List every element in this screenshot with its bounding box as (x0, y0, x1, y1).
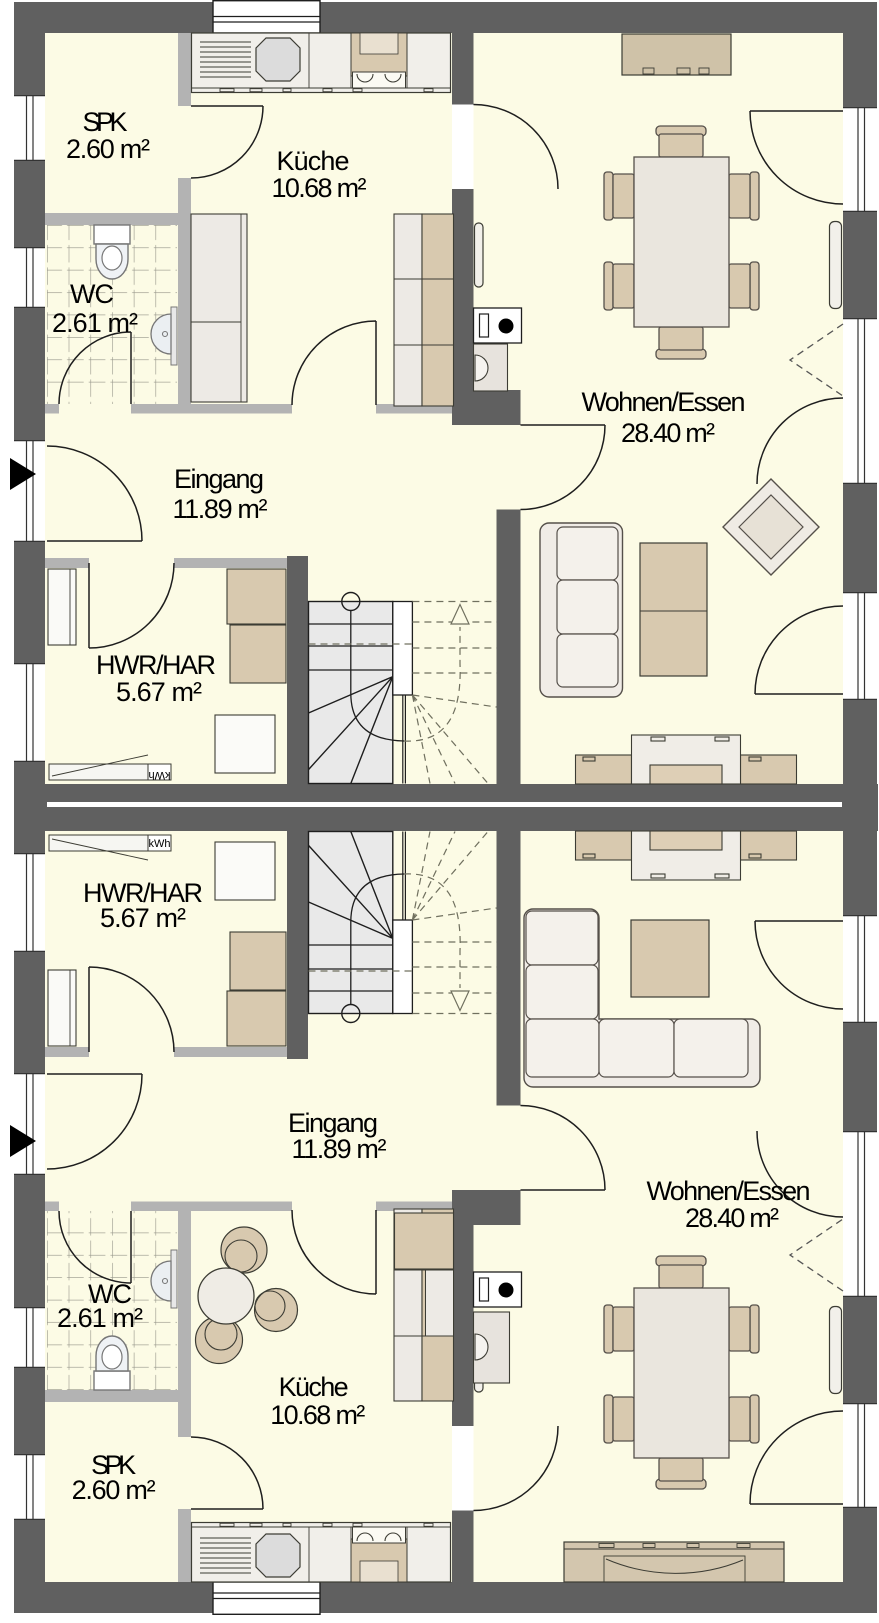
svg-text:5.67 m²: 5.67 m² (116, 677, 202, 707)
svg-text:2.61 m²: 2.61 m² (52, 308, 138, 338)
svg-text:10.68 m²: 10.68 m² (272, 173, 367, 203)
svg-text:5.67 m²: 5.67 m² (100, 903, 186, 933)
svg-text:Küche: Küche (277, 146, 350, 176)
svg-text:10.68 m²: 10.68 m² (270, 1400, 365, 1430)
svg-text:Eingang: Eingang (174, 464, 264, 494)
svg-text:11.89 m²: 11.89 m² (292, 1134, 387, 1164)
svg-text:kWh: kWh (149, 838, 171, 850)
svg-text:HWR/HAR: HWR/HAR (96, 650, 216, 680)
svg-text:2.60 m²: 2.60 m² (66, 134, 150, 164)
svg-text:kWh: kWh (149, 769, 171, 781)
svg-text:Wohnen/Essen: Wohnen/Essen (582, 387, 746, 417)
svg-text:WC: WC (70, 279, 114, 309)
svg-text:28.40 m²: 28.40 m² (621, 418, 715, 448)
svg-text:28.40 m²: 28.40 m² (685, 1203, 779, 1233)
svg-text:2.60 m²: 2.60 m² (72, 1475, 156, 1505)
svg-text:11.89 m²: 11.89 m² (173, 494, 268, 524)
svg-text:Wohnen/Essen: Wohnen/Essen (647, 1176, 811, 1206)
svg-text:2.61 m²: 2.61 m² (57, 1303, 143, 1333)
svg-text:Küche: Küche (279, 1372, 349, 1402)
svg-text:SPK: SPK (83, 107, 128, 137)
